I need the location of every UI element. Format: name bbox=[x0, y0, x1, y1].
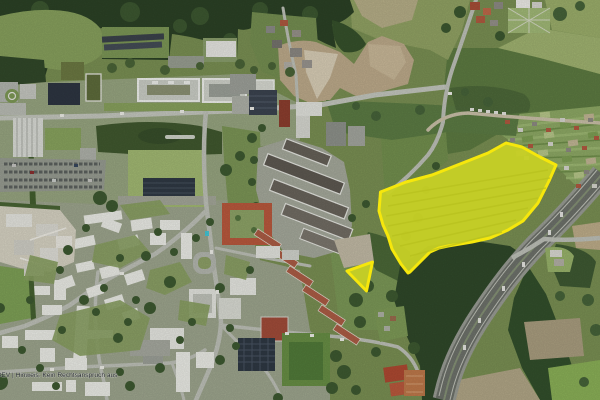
svg-text:BEV | Hinweis: Kein Rechtsansp: BEV | Hinweis: Kein Rechtsanspruch aus bbox=[0, 372, 118, 379]
